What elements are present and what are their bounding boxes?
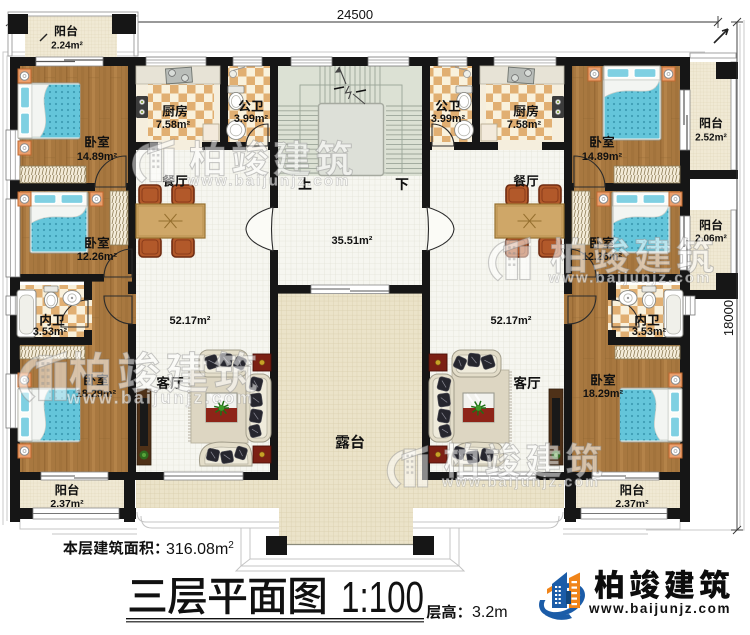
svg-text:3.2m: 3.2m [472,604,508,621]
svg-text:18000: 18000 [721,300,736,336]
svg-text:3.99m²: 3.99m² [234,113,269,125]
svg-text:316.08m2: 316.08m2 [166,540,234,558]
svg-text:52.17m²: 52.17m² [170,315,211,327]
svg-text:14.89m²: 14.89m² [582,151,623,163]
svg-text:www.baijunjz.com: www.baijunjz.com [441,475,600,491]
svg-text:www.baijunjz.com: www.baijunjz.com [547,270,711,287]
svg-text:24500: 24500 [337,7,373,22]
svg-text:www.baijunjz.com: www.baijunjz.com [588,601,731,616]
svg-text:2.37m²: 2.37m² [50,498,84,510]
svg-text:3.99m²: 3.99m² [431,113,466,125]
svg-text:www.baijunjz.com: www.baijunjz.com [186,173,350,190]
svg-text:18.29m²: 18.29m² [583,388,624,400]
svg-text:7.58m²: 7.58m² [156,119,191,131]
svg-text:3.53m²: 3.53m² [632,326,667,338]
svg-text:www.baijunjz.com: www.baijunjz.com [66,387,255,407]
svg-text:35.51m²: 35.51m² [332,235,373,247]
svg-text:2.52m²: 2.52m² [695,133,727,144]
svg-text:52.17m²: 52.17m² [491,315,532,327]
svg-text:12.26m²: 12.26m² [77,251,118,263]
svg-text:14.89m²: 14.89m² [77,151,118,163]
svg-text:7.58m²: 7.58m² [507,119,542,131]
svg-text:3.53m²: 3.53m² [33,326,68,338]
svg-text:1:100: 1:100 [341,573,424,622]
svg-text:2.37m²: 2.37m² [615,498,649,510]
svg-text:2.24m²: 2.24m² [51,41,83,52]
